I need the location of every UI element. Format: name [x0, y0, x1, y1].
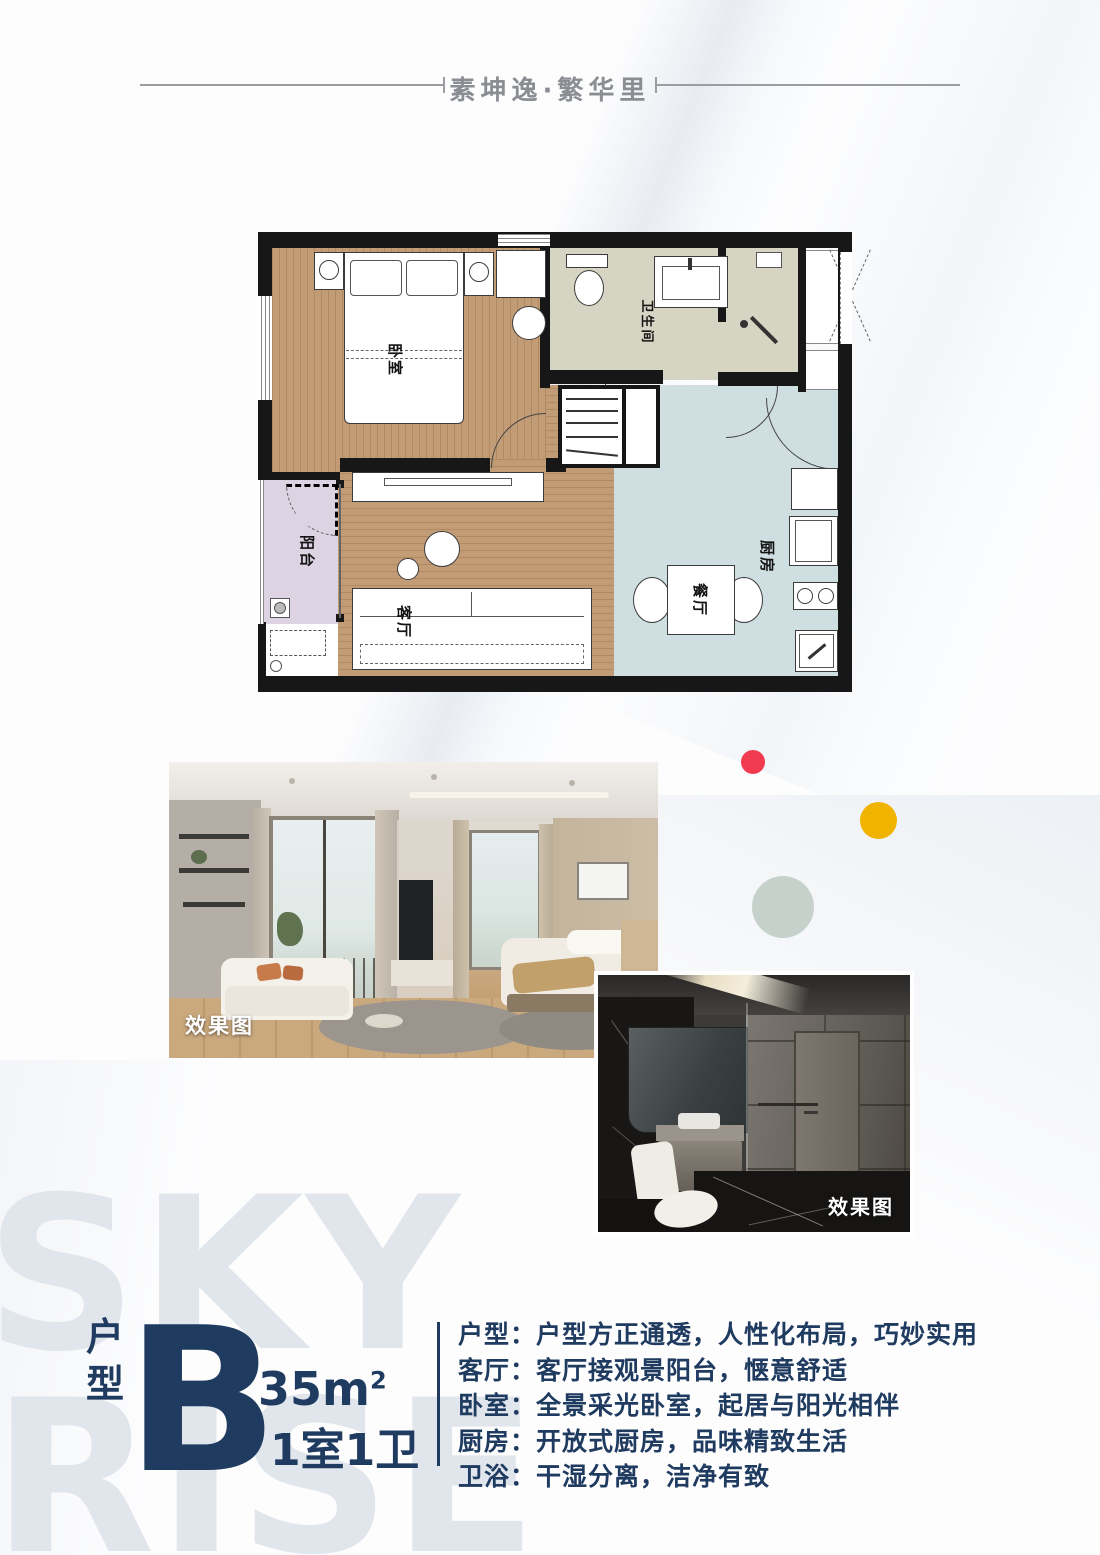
render1-balcony-plant [277, 912, 303, 946]
kitchen-counter-box1 [791, 468, 838, 510]
render2-towel-bar [758, 1103, 818, 1106]
wall-balcony-top [258, 472, 340, 480]
render1-round-table [365, 1014, 403, 1028]
wall-bathroom-bottom-left [546, 370, 663, 384]
stove-burner-right [818, 588, 834, 604]
render1-tv [399, 880, 433, 964]
wall-bedroom-living [340, 458, 490, 472]
sofa-cushion-divider [471, 592, 472, 616]
render1-cushion-rust [282, 965, 303, 981]
header-line-left [140, 84, 443, 86]
sink-basin [662, 266, 720, 300]
toilet-bowl [574, 270, 604, 306]
render1-shelf-2 [179, 868, 249, 873]
sink-faucet [688, 258, 692, 270]
tv [384, 478, 512, 486]
render1-shelf-1 [179, 834, 249, 839]
render-photo-bathroom: 效果图 [594, 971, 914, 1236]
render1-cushion-orange [256, 962, 282, 981]
shower-head [740, 320, 748, 328]
render1-spot-2 [431, 774, 437, 780]
unit-area: 35m2 [258, 1362, 387, 1416]
closet-rail-3 [566, 422, 618, 424]
vertical-divider [437, 1322, 440, 1466]
render-tag-living: 效果图 [185, 1010, 254, 1040]
brochure-page: SKY RISE 素坤逸·繁华里 [0, 0, 1100, 1555]
unit-area-value: 35m [258, 1362, 370, 1416]
render1-cove-light [409, 792, 609, 798]
render1-spot-1 [289, 778, 295, 784]
sofa-seat-dashed [360, 644, 584, 664]
lamp-left [319, 260, 339, 280]
shaft-lower-box [802, 350, 842, 390]
unit-area-sup: 2 [370, 1367, 387, 1395]
wall-bottom [258, 676, 852, 692]
feature-line-chufang: 厨房：开放式厨房，品味精致生活 [458, 1424, 978, 1460]
render1-plant [191, 850, 207, 864]
render-tag-bathroom: 效果图 [828, 1191, 894, 1220]
feature-line-huxing: 户型：户型方正通透，人性化布局，巧妙实用 [458, 1317, 978, 1353]
closet-rail-2 [566, 410, 618, 412]
lamp-right [469, 262, 489, 282]
render1-curtain-mid [375, 810, 399, 1024]
render1-spot-3 [569, 780, 575, 786]
tv-console [352, 472, 544, 502]
stove-burner-left [797, 588, 813, 604]
coffee-table-small [397, 558, 419, 580]
decor-dot-yellow [860, 802, 897, 839]
feature-line-woshi: 卧室：全景采光卧室，起居与阳光相伴 [458, 1388, 978, 1424]
render1-art-frame [577, 862, 629, 900]
balcony-drain [270, 660, 282, 672]
sofa-back-line [360, 616, 584, 617]
room-label-living: 客厅 [395, 592, 415, 652]
render1-tv-console [391, 960, 461, 986]
dining-chair-left [633, 577, 671, 623]
room-label-kitchen: 厨房 [758, 527, 778, 587]
unit-type-label: 户型 [86, 1314, 130, 1408]
header-bar-left [443, 77, 445, 93]
bath-accessory [756, 252, 782, 268]
render1-shelf-3 [183, 902, 245, 907]
unit-type-letter: B [126, 1302, 278, 1502]
toilet-tank [566, 254, 608, 268]
closet-rail-1 [566, 398, 618, 400]
bedroom-window [258, 296, 272, 400]
decor-dot-celadon [752, 876, 814, 938]
feature-line-keting: 客厅：客厅接观景阳台，惬意舒适 [458, 1353, 978, 1389]
balcony-cabinet-dashed [270, 630, 326, 656]
floor-plan: 卧室 卫生间 阳台 客厅 餐厅 厨房 [258, 232, 852, 692]
header-line-right [657, 84, 960, 86]
wardrobe [496, 250, 546, 298]
decor-dot-red [741, 750, 765, 774]
pillow-right [406, 260, 458, 296]
render2-door-handle [804, 1111, 818, 1114]
render-photo-living: 效果图 [169, 762, 658, 1058]
shaft-window [840, 252, 852, 344]
feature-list: 户型：户型方正通透，人性化布局，巧妙实用 客厅：客厅接观景阳台，惬意舒适 卧室：… [458, 1317, 978, 1495]
room-label-dining: 餐厅 [691, 570, 711, 630]
coffee-table-large [424, 531, 460, 567]
kitchen-counter-box2-inner [795, 520, 832, 562]
unit-rooms: 1室1卫 [270, 1414, 419, 1478]
wall-bathroom-bottom-right [718, 372, 802, 386]
render2-basin [678, 1113, 720, 1129]
room-label-bedroom: 卧室 [386, 330, 406, 390]
render1-curtain-right-1 [453, 820, 469, 1004]
washing-machine-drum [274, 602, 286, 614]
closet-rail-4 [566, 436, 618, 438]
room-label-bathroom: 卫生间 [638, 292, 658, 352]
balcony-glazing [258, 480, 264, 624]
top-wall-window [498, 234, 550, 246]
feature-line-weiyu: 卫浴：干湿分离，洁净有致 [458, 1459, 978, 1495]
wall-top [258, 232, 852, 248]
wall-shaft-left [798, 248, 806, 392]
room-label-balcony: 阳台 [298, 522, 318, 582]
wall-left-balcony-corner [258, 622, 266, 692]
pillow-left [350, 260, 402, 296]
closet-compartment [626, 385, 660, 468]
project-title: 素坤逸·繁华里 [447, 70, 653, 107]
bedroom-side-table [512, 306, 546, 340]
balcony-glass-divider [339, 484, 341, 618]
